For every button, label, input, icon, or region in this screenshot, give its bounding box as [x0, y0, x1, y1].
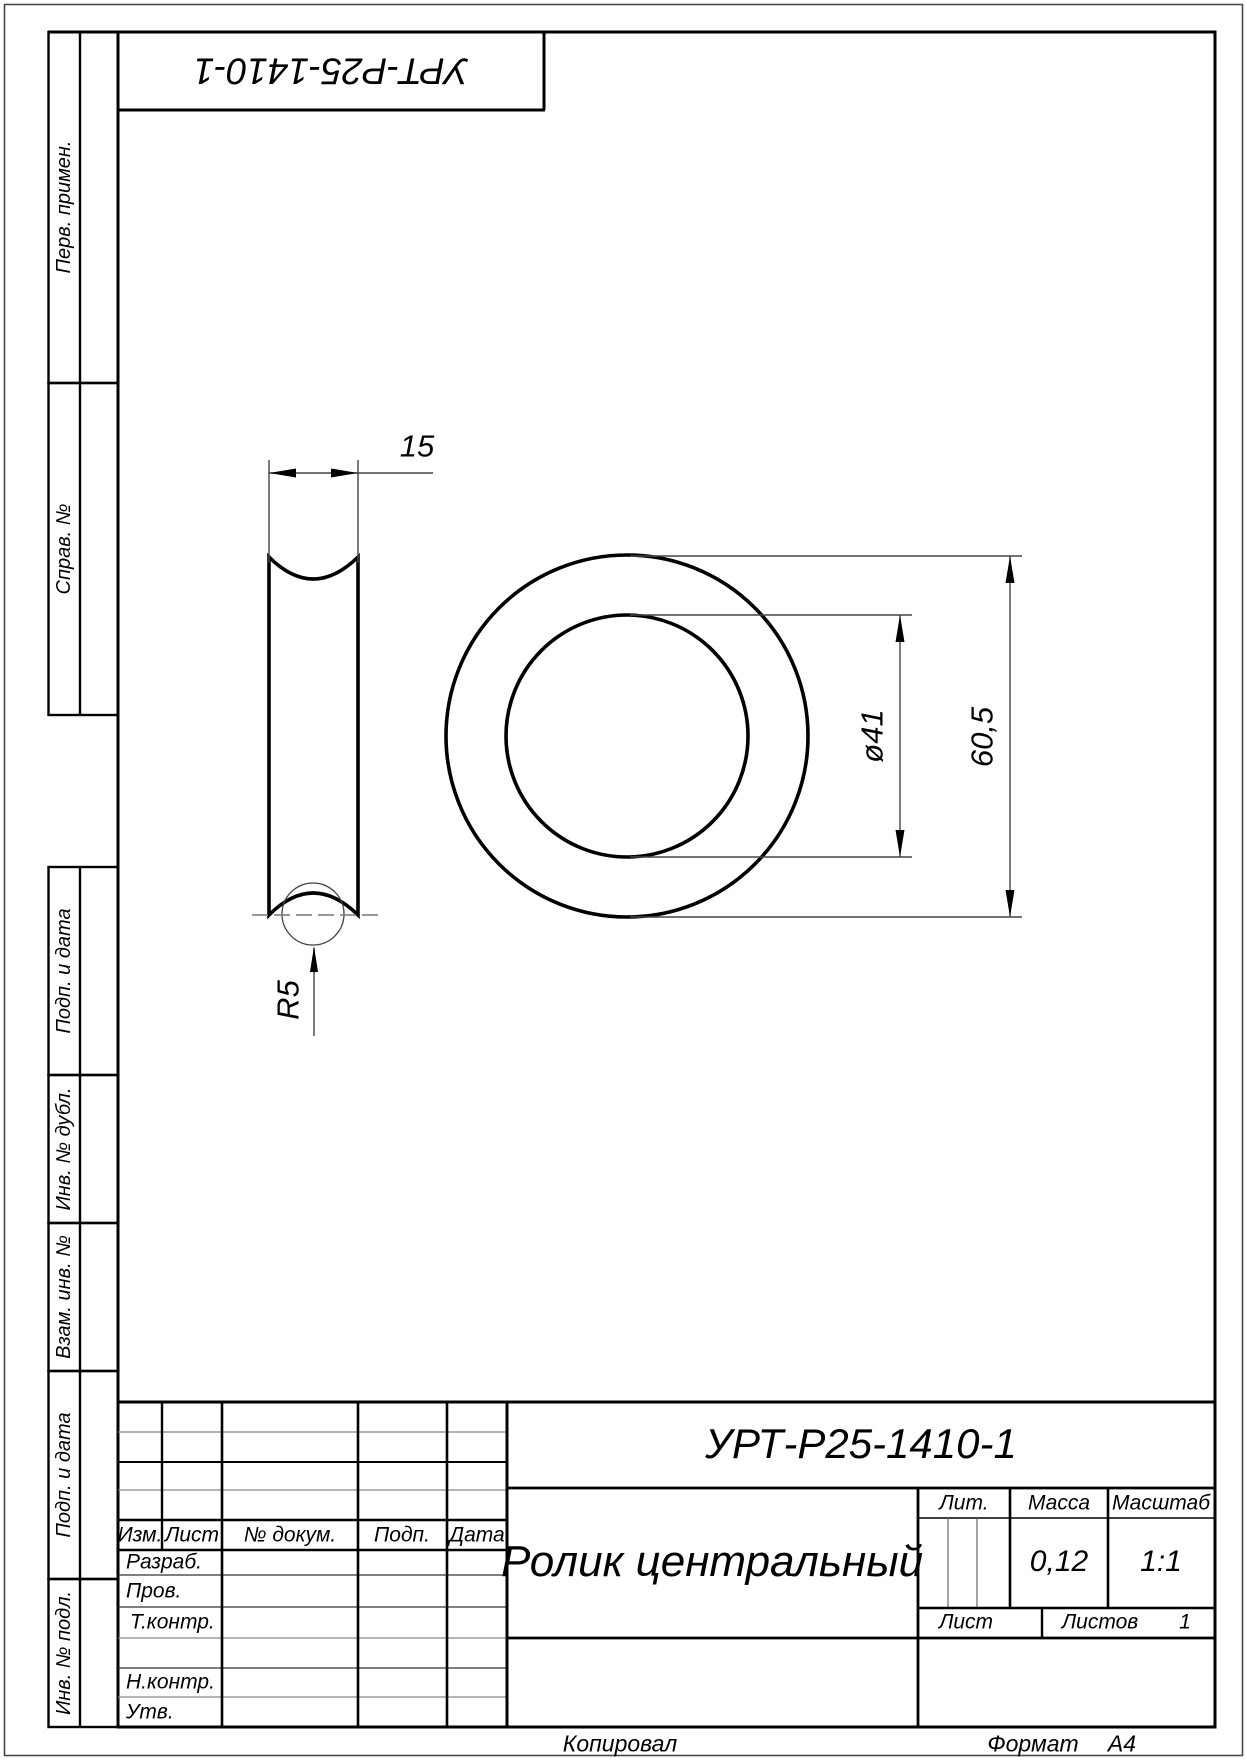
tb-header-doc: № докум.: [244, 1525, 337, 1546]
tb-row-tkontr: Т.контр.: [130, 1612, 215, 1633]
tb-list-label: Лист: [939, 1612, 993, 1633]
tb-header-list: Лист: [165, 1525, 219, 1546]
tb-listov-label: Листов: [1062, 1612, 1138, 1633]
front-view: [446, 555, 808, 917]
tb-row-utv: Утв.: [126, 1702, 174, 1723]
tb-part-name: Ролик центральный: [501, 1540, 923, 1584]
tb-row-prov: Пров.: [126, 1581, 181, 1602]
tb-designation: УРТ-Р25-1410-1: [705, 1423, 1017, 1465]
margin-label-vzam-inv-no: Взам. инв. №: [54, 1235, 74, 1359]
tb-header-izm: Изм.: [118, 1525, 163, 1546]
margin-label-inv-no-podl: Инв. № подл.: [54, 1591, 74, 1715]
dimension-groove-radius: [310, 946, 318, 1036]
tb-massa-value: 0,12: [1030, 1547, 1088, 1577]
margin-label-podp-i-data: Подп. и дата: [54, 908, 74, 1033]
tb-listov-value: 1: [1179, 1612, 1191, 1633]
format-label: Формат: [987, 1733, 1078, 1756]
dimension-width: [269, 460, 433, 563]
margin-label-perv-primen: Перв. примен.: [54, 141, 74, 274]
dim-width-label: 15: [400, 431, 434, 462]
bore-circle: [506, 615, 748, 857]
tb-lit-label: Лит.: [939, 1493, 988, 1514]
tb-masshtab-label: Масштаб: [1112, 1493, 1210, 1514]
drawing-sheet: УРТ-Р25-1410-1 Перв. примен. Справ. № По…: [0, 0, 1247, 1760]
tb-masshtab-value: 1:1: [1140, 1547, 1182, 1577]
top-designation-text: УРТ-Р25-1410-1: [194, 53, 469, 90]
tb-massa-label: Масса: [1028, 1493, 1090, 1514]
margin-label-podp-i-data-2: Подп. и дата: [54, 1412, 74, 1537]
copied-by-label: Копировал: [563, 1733, 677, 1756]
margin-label-sprav-no: Справ. №: [54, 504, 74, 595]
tb-row-razrab: Разраб.: [126, 1552, 202, 1573]
dim-bore-label: ø41: [857, 709, 888, 762]
margin-label-inv-no-dubl: Инв. № дубл.: [54, 1088, 74, 1211]
tb-row-nkontr: Н.контр.: [126, 1672, 215, 1693]
side-view: [252, 557, 384, 945]
tb-header-data: Дата: [449, 1525, 504, 1546]
tb-header-podp: Подп.: [374, 1525, 430, 1546]
dim-groove-radius-label: R5: [273, 980, 304, 1020]
dim-outer-label: 60,5: [967, 707, 998, 767]
format-value: А4: [1108, 1733, 1136, 1756]
